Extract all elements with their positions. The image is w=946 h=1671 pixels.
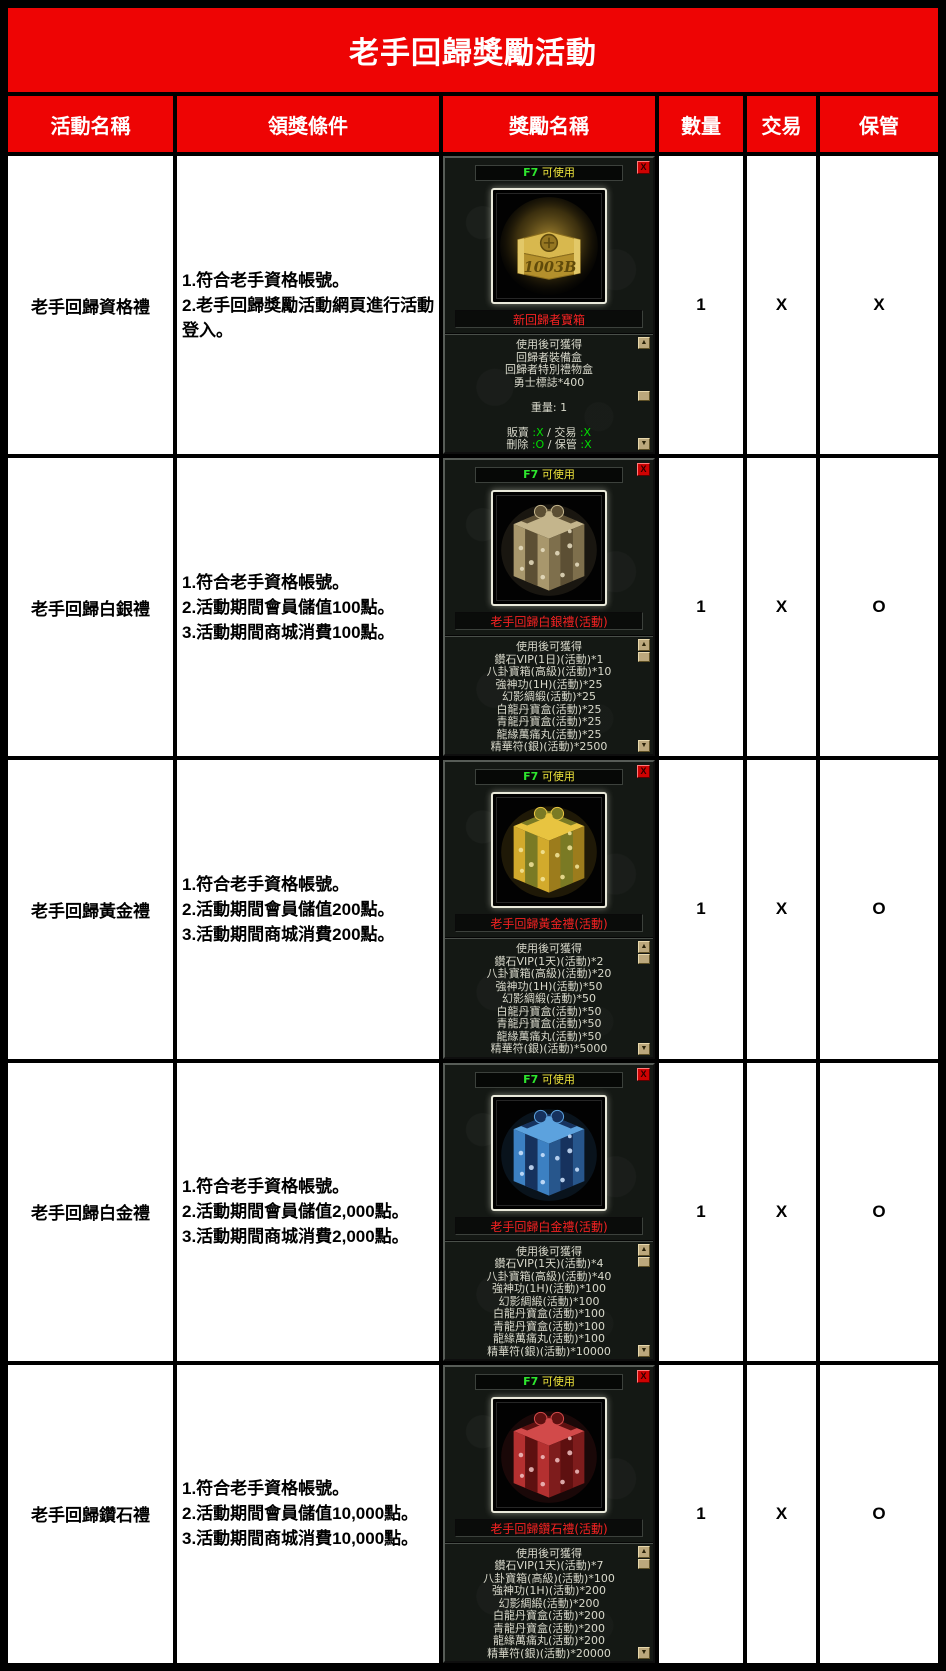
conditions-cell: 1.符合老手資格帳號。2.活動期間會員儲值10,000點。3.活動期間商城消費1… <box>177 1365 439 1663</box>
quantity-cell: 1 <box>659 156 743 454</box>
scroll-thumb[interactable] <box>638 652 650 662</box>
condition-line: 1.符合老手資格帳號。 <box>182 570 395 595</box>
scroll-thumb[interactable] <box>638 1257 650 1267</box>
tooltip-description: 使用後可獲得回歸者裝備盒回歸者特別禮物盒勇士標誌*400 重量: 1 販賣 :X… <box>445 335 653 452</box>
item-icon-frame <box>491 1397 607 1513</box>
activity-name-cell: 老手回歸白銀禮 <box>8 458 173 756</box>
activity-name: 老手回歸資格禮 <box>31 293 150 318</box>
conditions-cell: 1.符合老手資格帳號。2.活動期間會員儲值2,000點。3.活動期間商城消費2,… <box>177 1063 439 1361</box>
conditions-text: 1.符合老手資格帳號。2.活動期間會員儲值2,000點。3.活動期間商城消費2,… <box>182 1174 409 1249</box>
scroll-thumb[interactable] <box>638 954 650 964</box>
item-name-plate: 老手回歸鑽石禮(活動) <box>455 1519 643 1537</box>
column-header-trade: 交易 <box>747 96 816 152</box>
scroll-down-button[interactable]: ▼ <box>638 1345 650 1357</box>
activity-name: 老手回歸鑽石禮 <box>31 1501 150 1526</box>
column-header-storage: 保管 <box>820 96 938 152</box>
item-name: 老手回歸白銀禮(活動) <box>490 615 607 629</box>
item-name-plate: 老手回歸黃金禮(活動) <box>455 914 643 932</box>
tooltip-description: 使用後可獲得鑽石VIP(1天)(活動)*4八卦寶箱(高級)(活動)*40強神功(… <box>445 1242 653 1359</box>
description-line: 精華符(銀)(活動)*5000 <box>445 1043 653 1056</box>
event-page: 老手回歸獎勵活動 活動名稱 領獎條件 獎勵名稱 數量 交易 保管 老手回歸資格禮… <box>0 0 946 1671</box>
blue-gift-box-icon <box>496 1100 602 1206</box>
scroll-thumb[interactable] <box>638 391 650 401</box>
svg-text:1003B: 1003B <box>524 259 577 276</box>
gold-gift-box-icon <box>496 797 602 903</box>
storage-cell: O <box>820 760 938 1058</box>
conditions-text: 1.符合老手資格帳號。2.活動期間會員儲值200點。3.活動期間商城消費200點… <box>182 872 395 947</box>
scroll-up-button[interactable]: ▲ <box>638 639 650 651</box>
reward-tooltip-cell: X F7 可使用 老手回歸鑽石禮(活動) 使用後可獲得鑽石VIP(1天)(活動)… <box>443 1365 655 1663</box>
quantity-cell: 1 <box>659 458 743 756</box>
condition-line: 3.活動期間商城消費200點。 <box>182 922 395 947</box>
activity-name-cell: 老手回歸白金禮 <box>8 1063 173 1361</box>
scroll-up-button[interactable]: ▲ <box>638 941 650 953</box>
activity-name-cell: 老手回歸資格禮 <box>8 156 173 454</box>
trade-cell: X <box>747 760 816 1058</box>
activity-name: 老手回歸黃金禮 <box>31 897 150 922</box>
silver-gift-box-icon <box>496 495 602 601</box>
tooltip-close-button[interactable]: X <box>637 1370 650 1383</box>
trade-cell: X <box>747 458 816 756</box>
hotkey-label: F7 <box>523 770 538 783</box>
tooltip-description: 使用後可獲得鑽石VIP(1日)(活動)*1八卦寶箱(高級)(活動)*10強神功(… <box>445 637 653 754</box>
red-gift-box-icon <box>496 1402 602 1508</box>
condition-line: 2.活動期間會員儲值100點。 <box>182 595 395 620</box>
condition-line: 2.老手回歸獎勵活動網頁進行活動登入。 <box>182 293 437 343</box>
scroll-down-button[interactable]: ▼ <box>638 740 650 752</box>
item-name: 老手回歸白金禮(活動) <box>490 1220 607 1234</box>
reward-tooltip-cell: X F7 可使用 1003B 新回歸者寶箱 使用後可獲得回歸者裝備盒回歸者特別禮… <box>443 156 655 454</box>
item-tooltip-panel: X F7 可使用 老手回歸黃金禮(活動) 使用後可獲得鑽石VIP(1天)(活動)… <box>443 760 655 1058</box>
tooltip-close-button[interactable]: X <box>637 765 650 778</box>
conditions-text: 1.符合老手資格帳號。2.老手回歸獎勵活動網頁進行活動登入。 <box>182 268 437 343</box>
scroll-down-button[interactable]: ▼ <box>638 1043 650 1055</box>
hotkey-bar: F7 可使用 <box>475 1374 623 1390</box>
item-tooltip-panel: X F7 可使用 老手回歸鑽石禮(活動) 使用後可獲得鑽石VIP(1天)(活動)… <box>443 1365 655 1663</box>
activity-name-cell: 老手回歸黃金禮 <box>8 760 173 1058</box>
column-header-quantity: 數量 <box>659 96 743 152</box>
reward-tooltip-cell: X F7 可使用 老手回歸白金禮(活動) 使用後可獲得鑽石VIP(1天)(活動)… <box>443 1063 655 1361</box>
hotkey-label: F7 <box>523 1375 538 1388</box>
column-header-conditions: 領獎條件 <box>177 96 439 152</box>
hotkey-label: F7 <box>523 166 538 179</box>
hotkey-label: F7 <box>523 468 538 481</box>
quantity-cell: 1 <box>659 1365 743 1663</box>
trade-cell: X <box>747 1365 816 1663</box>
scroll-up-button[interactable]: ▲ <box>638 337 650 349</box>
storage-cell: O <box>820 458 938 756</box>
conditions-cell: 1.符合老手資格帳號。2.活動期間會員儲值100點。3.活動期間商城消費100點… <box>177 458 439 756</box>
storage-cell: O <box>820 1063 938 1361</box>
activity-name-cell: 老手回歸鑽石禮 <box>8 1365 173 1663</box>
column-header-reward: 獎勵名稱 <box>443 96 655 152</box>
condition-line: 2.活動期間會員儲值200點。 <box>182 897 395 922</box>
usable-label: 可使用 <box>542 468 575 481</box>
usable-label: 可使用 <box>542 166 575 179</box>
column-header-activity: 活動名稱 <box>8 96 173 152</box>
condition-line: 1.符合老手資格帳號。 <box>182 268 437 293</box>
conditions-cell: 1.符合老手資格帳號。2.活動期間會員儲值200點。3.活動期間商城消費200點… <box>177 760 439 1058</box>
scroll-up-button[interactable]: ▲ <box>638 1546 650 1558</box>
trade-cell: X <box>747 1063 816 1361</box>
description-line: 精華符(銀)(活動)*2500 <box>445 741 653 754</box>
condition-line: 3.活動期間商城消費100點。 <box>182 620 395 645</box>
reward-tooltip-cell: X F7 可使用 老手回歸白銀禮(活動) 使用後可獲得鑽石VIP(1日)(活動)… <box>443 458 655 756</box>
condition-line: 1.符合老手資格帳號。 <box>182 1476 418 1501</box>
usable-label: 可使用 <box>542 770 575 783</box>
storage-cell: X <box>820 156 938 454</box>
scroll-thumb[interactable] <box>638 1559 650 1569</box>
tooltip-close-button[interactable]: X <box>637 1068 650 1081</box>
item-name-plate: 新回歸者寶箱 <box>455 310 643 328</box>
conditions-cell: 1.符合老手資格帳號。2.老手回歸獎勵活動網頁進行活動登入。 <box>177 156 439 454</box>
usable-label: 可使用 <box>542 1375 575 1388</box>
item-name: 老手回歸鑽石禮(活動) <box>490 1522 607 1536</box>
usable-label: 可使用 <box>542 1073 575 1086</box>
item-icon-frame: 1003B <box>491 188 607 304</box>
condition-line: 2.活動期間會員儲值2,000點。 <box>182 1199 409 1224</box>
description-line: 刪除 :O / 保管 :X <box>445 439 653 452</box>
storage-cell: O <box>820 1365 938 1663</box>
tooltip-description: 使用後可獲得鑽石VIP(1天)(活動)*7八卦寶箱(高級)(活動)*100強神功… <box>445 1544 653 1661</box>
page-title: 老手回歸獎勵活動 <box>8 8 938 92</box>
hotkey-bar: F7 可使用 <box>475 165 623 181</box>
tooltip-description: 使用後可獲得鑽石VIP(1天)(活動)*2八卦寶箱(高級)(活動)*20強神功(… <box>445 939 653 1056</box>
activity-name: 老手回歸白金禮 <box>31 1199 150 1224</box>
condition-line: 3.活動期間商城消費2,000點。 <box>182 1224 409 1249</box>
hotkey-label: F7 <box>523 1073 538 1086</box>
gold-chest-icon: 1003B <box>496 193 602 299</box>
scroll-down-button[interactable]: ▼ <box>638 438 650 450</box>
quantity-cell: 1 <box>659 760 743 1058</box>
item-icon-frame <box>491 792 607 908</box>
item-tooltip-panel: X F7 可使用 老手回歸白金禮(活動) 使用後可獲得鑽石VIP(1天)(活動)… <box>443 1063 655 1361</box>
item-icon-frame <box>491 1095 607 1211</box>
condition-line: 3.活動期間商城消費10,000點。 <box>182 1526 418 1551</box>
hotkey-bar: F7 可使用 <box>475 467 623 483</box>
hotkey-bar: F7 可使用 <box>475 769 623 785</box>
item-name: 新回歸者寶箱 <box>513 313 585 327</box>
item-name: 老手回歸黃金禮(活動) <box>490 917 607 931</box>
condition-line: 2.活動期間會員儲值10,000點。 <box>182 1501 418 1526</box>
trade-cell: X <box>747 156 816 454</box>
item-name-plate: 老手回歸白金禮(活動) <box>455 1217 643 1235</box>
table-grid: 老手回歸獎勵活動 活動名稱 領獎條件 獎勵名稱 數量 交易 保管 老手回歸資格禮… <box>8 8 938 1663</box>
item-icon-frame <box>491 490 607 606</box>
conditions-text: 1.符合老手資格帳號。2.活動期間會員儲值10,000點。3.活動期間商城消費1… <box>182 1476 418 1551</box>
item-tooltip-panel: X F7 可使用 老手回歸白銀禮(活動) 使用後可獲得鑽石VIP(1日)(活動)… <box>443 458 655 756</box>
conditions-text: 1.符合老手資格帳號。2.活動期間會員儲值100點。3.活動期間商城消費100點… <box>182 570 395 645</box>
description-line: 精華符(銀)(活動)*20000 <box>445 1648 653 1661</box>
tooltip-close-button[interactable]: X <box>637 161 650 174</box>
hotkey-bar: F7 可使用 <box>475 1072 623 1088</box>
condition-line: 1.符合老手資格帳號。 <box>182 872 395 897</box>
condition-line: 1.符合老手資格帳號。 <box>182 1174 409 1199</box>
tooltip-close-button[interactable]: X <box>637 463 650 476</box>
description-line: 精華符(銀)(活動)*10000 <box>445 1346 653 1359</box>
item-name-plate: 老手回歸白銀禮(活動) <box>455 612 643 630</box>
scroll-down-button[interactable]: ▼ <box>638 1647 650 1659</box>
quantity-cell: 1 <box>659 1063 743 1361</box>
reward-tooltip-cell: X F7 可使用 老手回歸黃金禮(活動) 使用後可獲得鑽石VIP(1天)(活動)… <box>443 760 655 1058</box>
item-tooltip-panel: X F7 可使用 1003B 新回歸者寶箱 使用後可獲得回歸者裝備盒回歸者特別禮… <box>443 156 655 454</box>
activity-name: 老手回歸白銀禮 <box>31 595 150 620</box>
scroll-up-button[interactable]: ▲ <box>638 1244 650 1256</box>
